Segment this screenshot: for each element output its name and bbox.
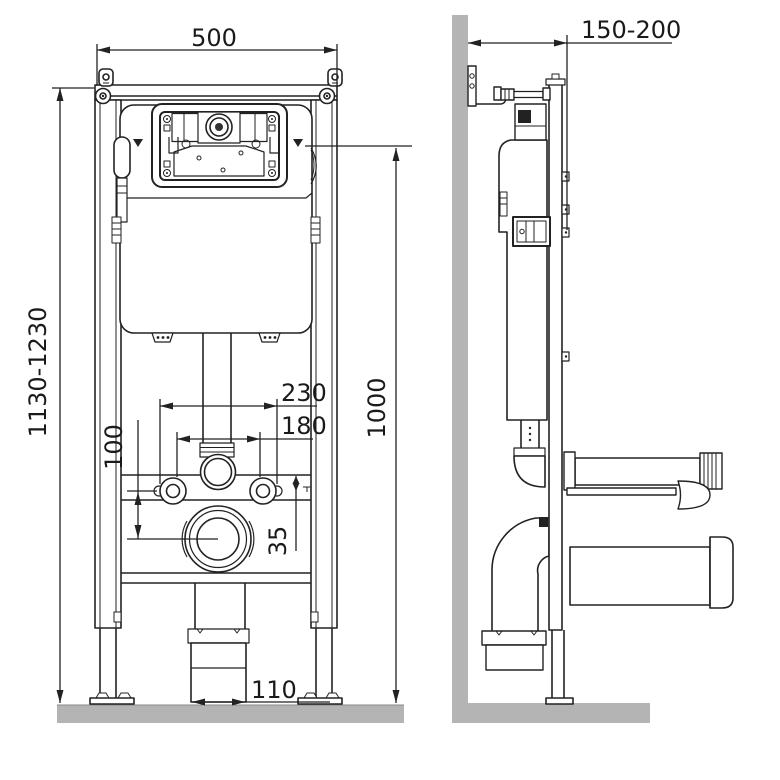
frame-rail-side xyxy=(546,74,573,704)
side-view xyxy=(452,15,733,723)
dim-rail-offset xyxy=(293,476,312,551)
label-depth-range: 150-200 xyxy=(581,16,681,44)
label-height-range: 1130-1230 xyxy=(24,307,52,438)
floor-front xyxy=(57,705,404,723)
tank-bottom-tabs xyxy=(152,333,280,342)
hanger-tab-left xyxy=(99,69,113,86)
tank-clip-right xyxy=(311,217,320,243)
fill-valve-cap-side xyxy=(515,104,546,140)
label-bolt-to-outlet: 100 xyxy=(100,424,128,470)
drain-elbow-side xyxy=(492,518,549,633)
frame-top-rail xyxy=(95,85,337,100)
panel-plate xyxy=(174,146,264,176)
label-spacing-inner: 180 xyxy=(281,412,327,440)
frame-column-right xyxy=(311,100,337,628)
drawing-svg: 500 1130-1230 230 180 100 35 1000 110 15… xyxy=(0,0,780,780)
dim-panel-axis-height xyxy=(393,148,400,703)
label-spacing-outer: 230 xyxy=(281,379,327,407)
label-rail-offset: 35 xyxy=(264,526,292,557)
actuator-rod-housing xyxy=(114,137,130,222)
tank-clip-left xyxy=(112,217,121,243)
outlet-pipe-front xyxy=(188,583,249,702)
floor-side xyxy=(452,703,650,723)
outlet-connector-side xyxy=(570,537,733,608)
flush-pipe-side xyxy=(514,420,548,527)
hanger-tab-right xyxy=(328,69,342,86)
flush-elbow-front xyxy=(201,455,236,490)
side-housing xyxy=(500,192,507,216)
wall-bracket xyxy=(468,66,550,106)
label-frame-width: 500 xyxy=(191,24,237,52)
label-outlet-width: 110 xyxy=(251,676,297,704)
technical-drawing: 500 1130-1230 230 180 100 35 1000 110 15… xyxy=(0,0,780,780)
cistern-side xyxy=(499,140,547,420)
wall xyxy=(452,15,468,705)
dim-height-range xyxy=(52,88,94,703)
bolt-right xyxy=(320,89,335,104)
front-view xyxy=(57,69,412,723)
access-panel xyxy=(152,104,287,187)
bolt-left xyxy=(96,89,111,104)
label-panel-axis-height: 1000 xyxy=(363,377,391,438)
drain-socket-side xyxy=(482,631,546,670)
service-box-side xyxy=(513,217,550,246)
